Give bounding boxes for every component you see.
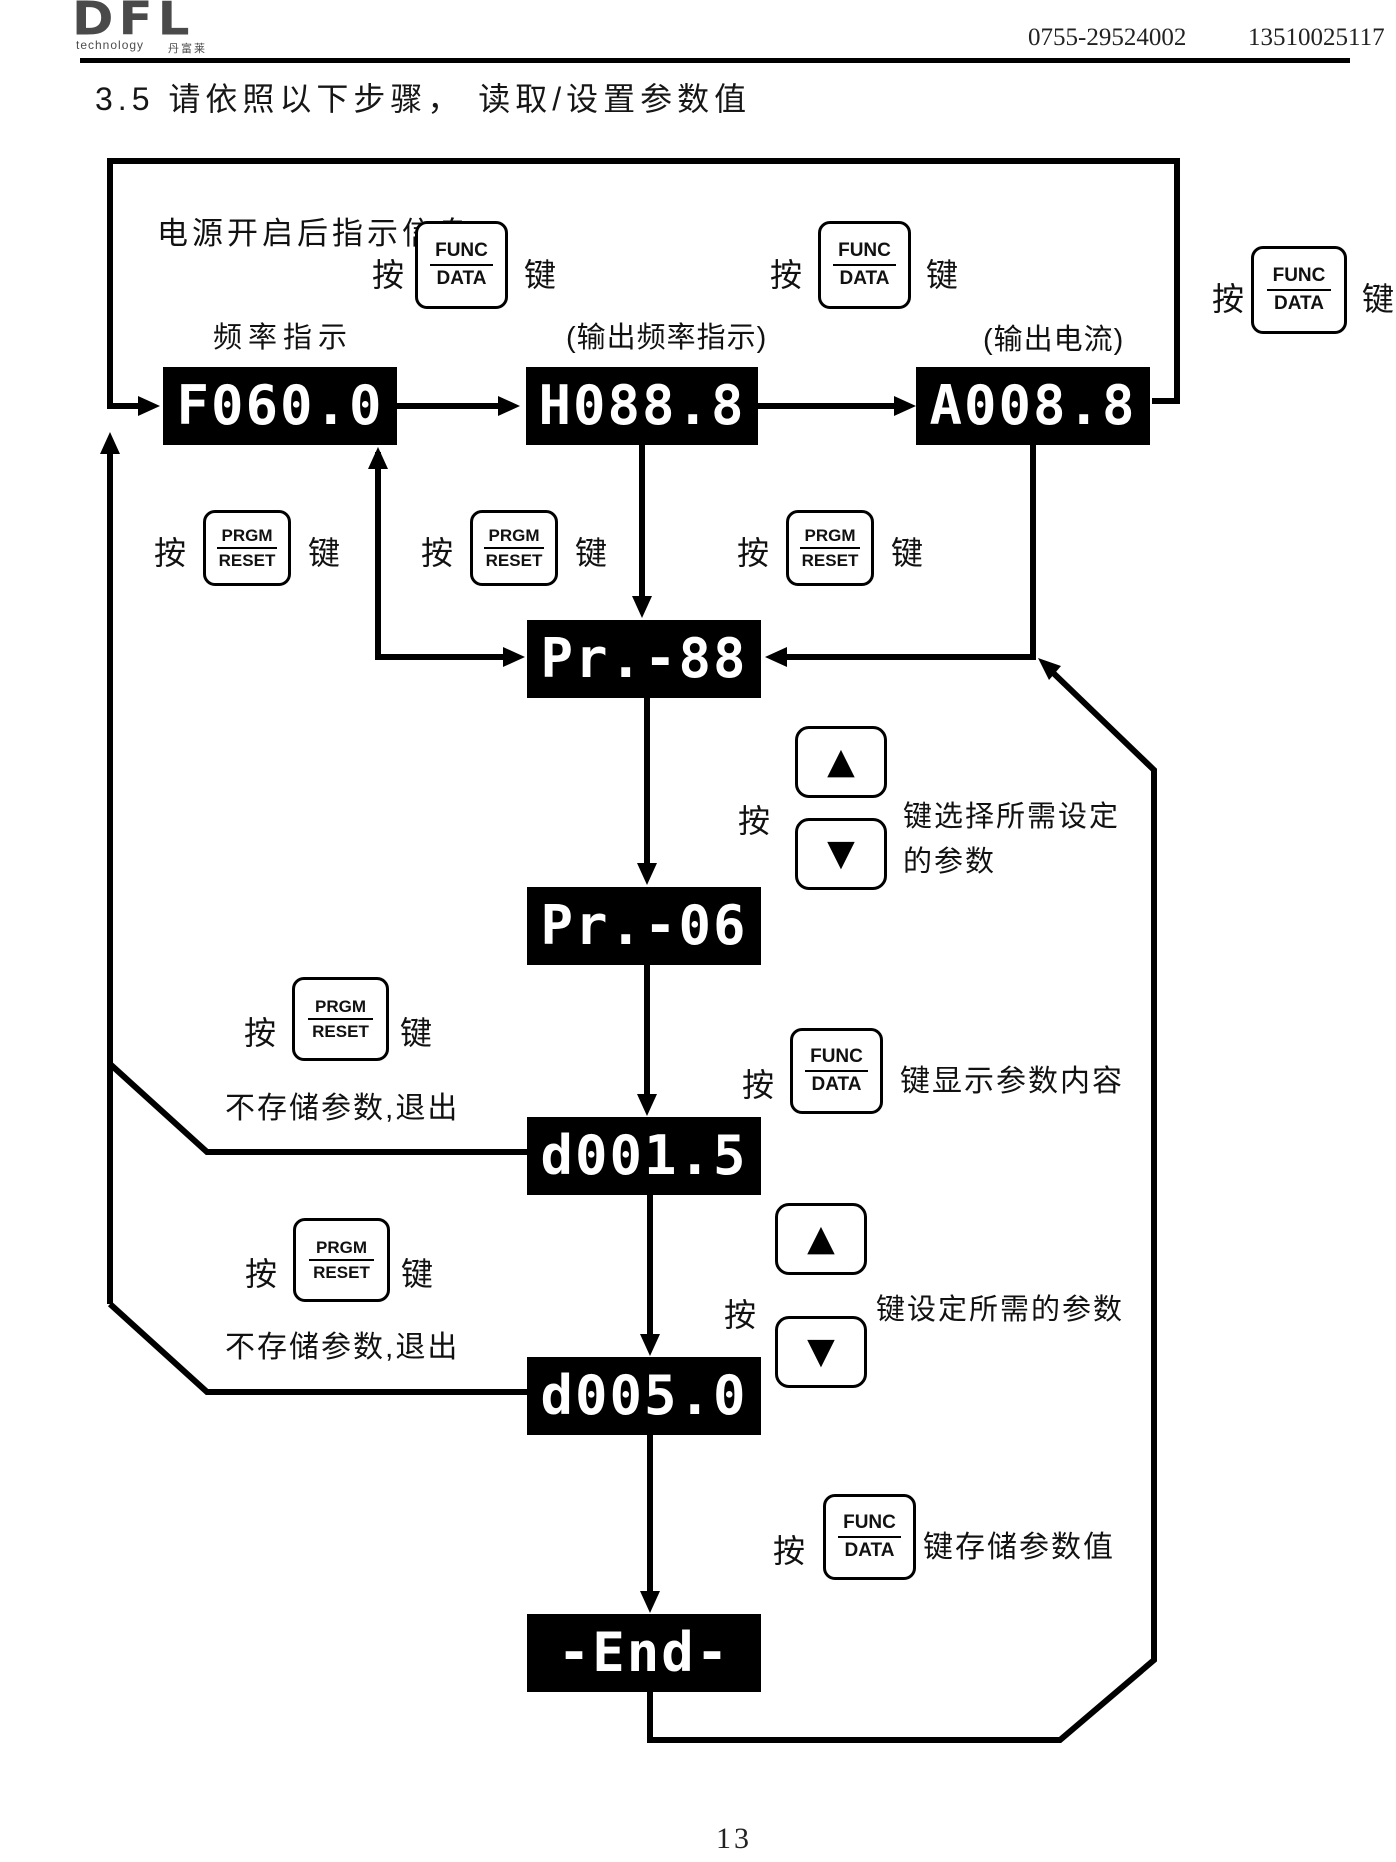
display-parameter-new-value: d005.0 (527, 1357, 761, 1435)
manual-page: DFL technology 丹富莱 0755-29524002 1351002… (0, 0, 1396, 1862)
func-data-button: FUNC DATA (415, 221, 508, 309)
key-label: 键 (308, 528, 340, 574)
prgm-reset-button: PRGM RESET (470, 510, 558, 586)
prgm-reset-button: PRGM RESET (786, 510, 874, 586)
key-label: 键 (891, 528, 923, 574)
prgm-label: PRGM (316, 1237, 367, 1258)
prgm-label: PRGM (805, 525, 856, 546)
press-label: 按 (770, 250, 802, 296)
press-label: 按 (244, 1008, 276, 1054)
down-arrow-icon: ▼ (807, 1334, 835, 1370)
key-label: 键 (575, 528, 607, 574)
func-data-button: FUNC DATA (818, 221, 911, 309)
output-current-label: (输出电流) (983, 316, 1124, 358)
prgm-reset-button: PRGM RESET (293, 1218, 390, 1302)
button-divider (800, 547, 859, 549)
up-arrow-icon: ▲ (827, 744, 855, 780)
button-divider (309, 1259, 375, 1261)
key-label: 键 (524, 250, 556, 296)
key-label: 键 (400, 1008, 432, 1054)
data-label: DATA (437, 267, 487, 291)
no-save-exit-text: 不存储参数,退出 (225, 1083, 459, 1127)
key-label: 键 (926, 250, 958, 296)
prgm-label: PRGM (222, 525, 273, 546)
up-arrow-button: ▲ (775, 1203, 867, 1275)
reset-label: RESET (802, 550, 859, 571)
display-parameter-value: d001.5 (527, 1117, 761, 1195)
button-divider (430, 264, 493, 266)
press-label: 按 (724, 1290, 756, 1336)
press-label: 按 (737, 528, 769, 574)
press-label: 按 (773, 1526, 805, 1572)
prgm-reset-button: PRGM RESET (203, 510, 291, 586)
display-parameter-selected: Pr.-06 (527, 887, 761, 965)
button-divider (833, 264, 896, 266)
prgm-label: PRGM (315, 996, 366, 1017)
data-label: DATA (840, 267, 890, 291)
key-label: 键 (1362, 274, 1394, 320)
reset-label: RESET (312, 1021, 369, 1042)
show-param-text: 键显示参数内容 (900, 1056, 1124, 1100)
data-label: DATA (845, 1539, 895, 1563)
select-param-text-line1: 键选择所需设定 (903, 793, 1120, 835)
func-label: FUNC (838, 239, 891, 263)
save-param-text: 键存储参数值 (923, 1522, 1115, 1566)
reset-label: RESET (486, 550, 543, 571)
up-arrow-button: ▲ (795, 726, 887, 798)
press-label: 按 (738, 796, 770, 842)
display-output-frequency: H088.8 (526, 367, 758, 445)
button-divider (1267, 289, 1332, 291)
func-label: FUNC (843, 1511, 896, 1535)
button-divider (308, 1018, 374, 1020)
set-param-text: 键设定所需的参数 (876, 1286, 1124, 1328)
page-number: 13 (716, 1822, 752, 1856)
data-label: DATA (1274, 292, 1324, 316)
display-frequency: F060.0 (163, 367, 397, 445)
press-label: 按 (154, 528, 186, 574)
press-label: 按 (421, 528, 453, 574)
reset-label: RESET (219, 550, 276, 571)
press-label: 按 (742, 1060, 774, 1106)
press-label: 按 (1212, 274, 1244, 320)
prgm-label: PRGM (489, 525, 540, 546)
down-arrow-button: ▼ (775, 1316, 867, 1388)
press-label: 按 (372, 250, 404, 296)
down-arrow-icon: ▼ (827, 836, 855, 872)
reset-label: RESET (313, 1262, 370, 1283)
press-label: 按 (245, 1249, 277, 1295)
func-label: FUNC (810, 1045, 863, 1069)
button-divider (838, 1536, 901, 1538)
output-freq-label: (输出频率指示) (566, 314, 767, 356)
button-divider (217, 547, 276, 549)
func-data-button: FUNC DATA (823, 1494, 916, 1580)
func-data-button: FUNC DATA (1251, 246, 1347, 334)
key-label: 键 (401, 1249, 433, 1295)
display-parameter-group: Pr.-88 (527, 620, 761, 698)
button-divider (484, 547, 543, 549)
up-arrow-icon: ▲ (807, 1221, 835, 1257)
prgm-reset-button: PRGM RESET (292, 977, 389, 1061)
down-arrow-button: ▼ (795, 818, 887, 890)
func-label: FUNC (435, 239, 488, 263)
func-label: FUNC (1273, 264, 1326, 288)
data-label: DATA (812, 1073, 862, 1097)
button-divider (805, 1070, 868, 1072)
display-end: -End- (527, 1614, 761, 1692)
no-save-exit-text: 不存储参数,退出 (225, 1322, 459, 1366)
display-output-current: A008.8 (916, 367, 1150, 445)
select-param-text-line2: 的参数 (903, 838, 996, 880)
freq-indication-label: 频率指示 (213, 314, 353, 356)
func-data-button: FUNC DATA (790, 1028, 883, 1114)
